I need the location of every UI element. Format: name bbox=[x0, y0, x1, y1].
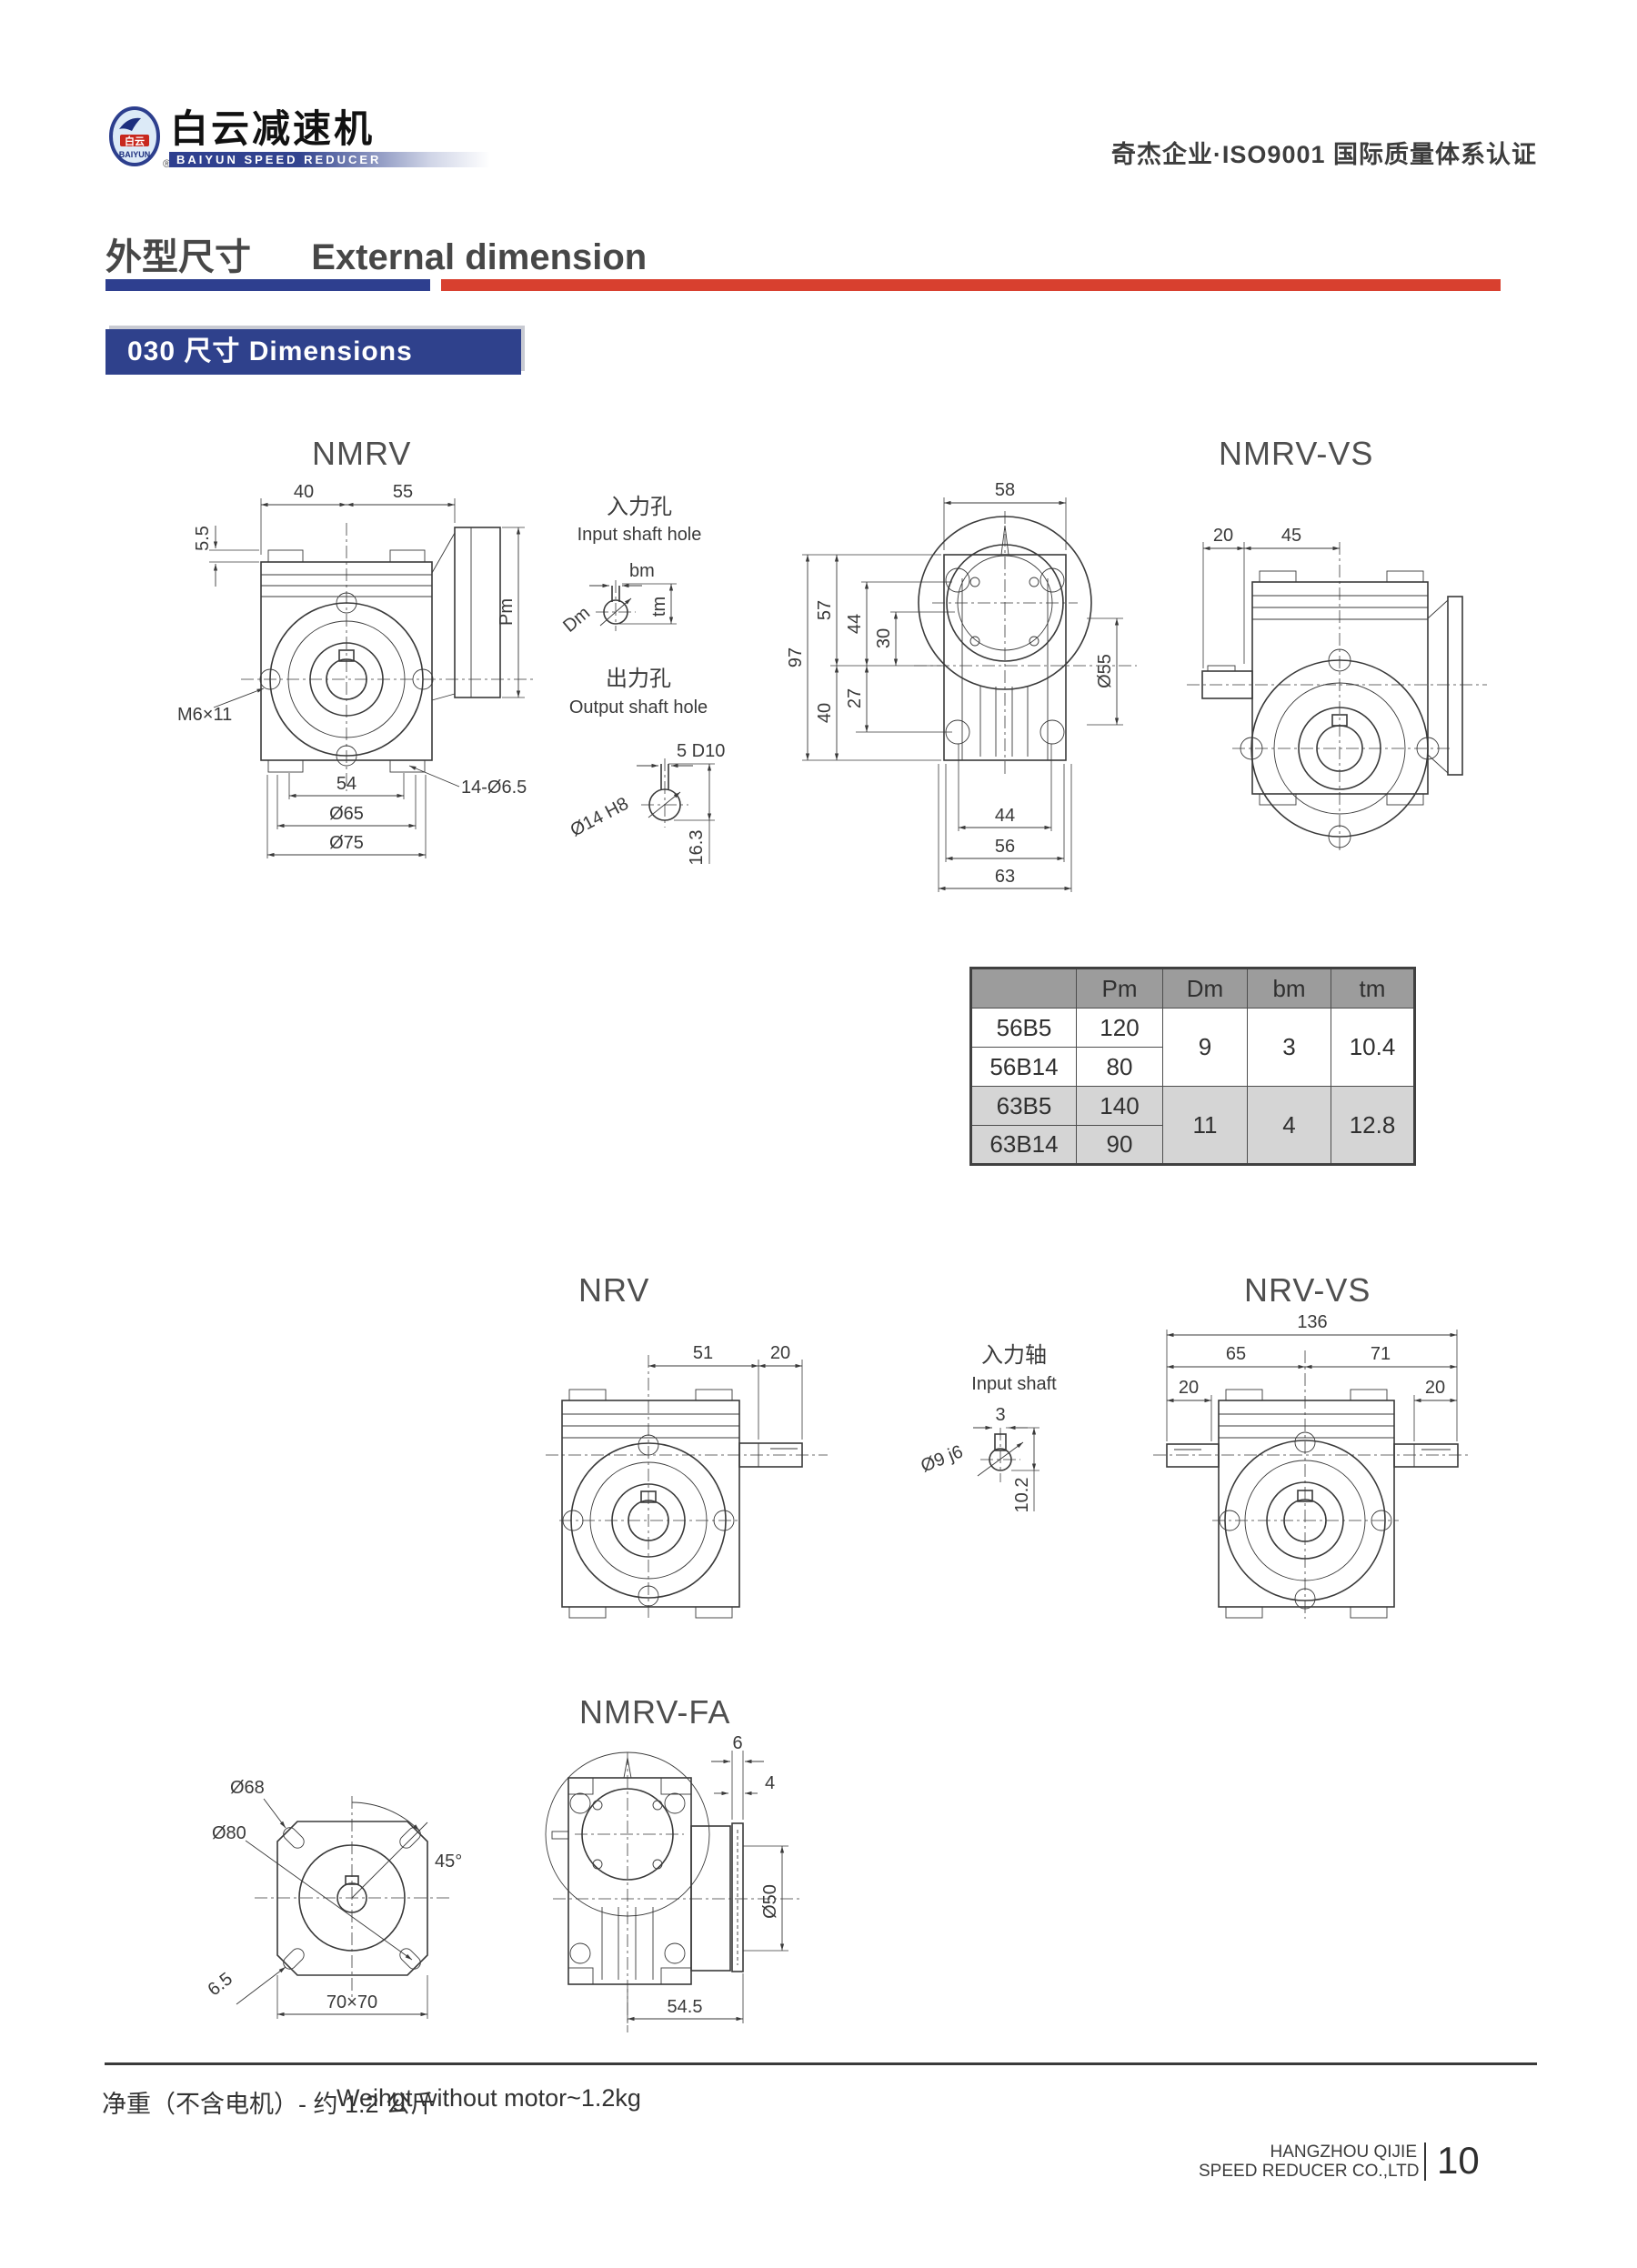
dim-o50: Ø50 bbox=[760, 1884, 780, 1919]
holes-leader bbox=[409, 766, 459, 787]
cell-bm-group: 4 bbox=[1248, 1087, 1331, 1165]
dimensions-banner: 030 尺寸 Dimensions bbox=[105, 329, 521, 375]
fa-flange-dims bbox=[236, 1799, 427, 2019]
table-row: 56B5 120 9 3 10.4 bbox=[971, 1009, 1415, 1048]
dim-b44: 44 bbox=[995, 806, 1015, 826]
cell-pm: 90 bbox=[1077, 1126, 1163, 1165]
dim-44l: 44 bbox=[845, 614, 865, 634]
cell-tm-group: 12.8 bbox=[1331, 1087, 1415, 1165]
catalog-page: 白云 BAIYUN ® 白云减速机 BAIYUN SPEED REDUCER 奇… bbox=[0, 0, 1637, 2268]
cell-model: 63B5 bbox=[971, 1087, 1077, 1126]
fa-centerlines bbox=[255, 1796, 450, 2001]
nmrv-motor-flange bbox=[432, 527, 500, 700]
weight-note-en: Weihgt without motor~1.2kg bbox=[336, 2084, 641, 2112]
nrv-vs-title: NRV-VS bbox=[1244, 1271, 1371, 1310]
dim-b56: 56 bbox=[995, 837, 1015, 857]
nmrv-fa-side-drawing: 6 4 Ø50 54.5 bbox=[509, 1732, 891, 2078]
dim-14-6-5: 14-Ø6.5 bbox=[461, 778, 527, 798]
dim-6-5: 6.5 bbox=[205, 1969, 236, 2000]
header-pm: Pm bbox=[1077, 968, 1163, 1009]
input-shaft-cn: 入力轴 bbox=[981, 1343, 1047, 1368]
dim-20right: 20 bbox=[1425, 1378, 1445, 1398]
dim-65vs: 65 bbox=[1226, 1344, 1246, 1364]
section-title: 外型尺寸 External dimension bbox=[105, 227, 647, 280]
dim-m6x11: M6×11 bbox=[177, 705, 232, 725]
dim-16-3: 16.3 bbox=[687, 830, 707, 866]
dim-20vs: 20 bbox=[1213, 526, 1233, 546]
nrvvs-housing bbox=[1219, 1390, 1394, 1618]
header-tm: tm bbox=[1331, 968, 1415, 1009]
dim-136: 136 bbox=[1297, 1312, 1327, 1332]
dim-54: 54 bbox=[336, 774, 357, 794]
nmrvvs-centerlines bbox=[1187, 542, 1487, 850]
title-underline-blue bbox=[105, 279, 430, 291]
page-number: 10 bbox=[1437, 2139, 1480, 2183]
output-hole-en: Output shaft hole bbox=[569, 697, 708, 718]
nrv-housing bbox=[562, 1390, 739, 1618]
company-line1: HANGZHOU QIJIE bbox=[1199, 2143, 1417, 2162]
header-bm: bm bbox=[1248, 968, 1331, 1009]
nrv-shaft bbox=[739, 1443, 802, 1467]
cell-pm: 80 bbox=[1077, 1048, 1163, 1087]
nmrv-drawing: 40 55 5.5 Pm 54 Ø65 Ø75 M6×11 14-Ø6.5 bbox=[114, 473, 541, 928]
input-shaft-en: Input shaft bbox=[971, 1374, 1057, 1394]
nrv-drawing: 51 20 bbox=[509, 1310, 900, 1655]
nmrv-vs-title: NMRV-VS bbox=[1219, 435, 1373, 473]
input-shaft-drawing: 入力轴 Input shaft 3 Ø9 j6 10.2 bbox=[900, 1300, 1155, 1591]
cell-model: 63B14 bbox=[971, 1126, 1077, 1165]
company-line2: SPEED REDUCER CO.,LTD bbox=[1199, 2162, 1417, 2181]
dim-20left: 20 bbox=[1179, 1378, 1199, 1398]
baiyun-logo-emblem: 白云 BAIYUN ® bbox=[110, 107, 174, 176]
nrv-vs-drawing: 136 65 71 20 20 bbox=[1149, 1310, 1558, 1655]
footer-divider bbox=[105, 2062, 1537, 2065]
dim-75: Ø75 bbox=[329, 833, 364, 853]
dim-4: 4 bbox=[765, 1773, 775, 1793]
dim-o68: Ø68 bbox=[230, 1778, 265, 1798]
section-title-cn: 外型尺寸 bbox=[105, 237, 251, 277]
dim-55: 55 bbox=[393, 482, 413, 502]
company-name: HANGZHOU QIJIE SPEED REDUCER CO.,LTD bbox=[1199, 2143, 1417, 2181]
dim-3: 3 bbox=[995, 1405, 1005, 1425]
dim-10-2: 10.2 bbox=[1012, 1478, 1032, 1513]
nmrv-vs-drawing: 20 45 bbox=[1178, 473, 1560, 928]
nmrv-fa-flange-drawing: Ø68 Ø80 45° 6.5 70×70 bbox=[118, 1773, 446, 2082]
dim-54-5: 54.5 bbox=[668, 1997, 703, 2017]
logo-subtitle-bar: BAIYUN SPEED REDUCER bbox=[169, 152, 497, 167]
cell-tm-group: 10.4 bbox=[1331, 1009, 1415, 1087]
dim-58: 58 bbox=[995, 480, 1015, 500]
section-title-en: External dimension bbox=[311, 237, 647, 277]
table-row: 63B5 140 11 4 12.8 bbox=[971, 1087, 1415, 1126]
dim-45deg: 45° bbox=[435, 1852, 462, 1872]
nmrv-centerlines bbox=[241, 523, 534, 791]
dim-70x70: 70×70 bbox=[326, 1992, 377, 2012]
dim-tm: tm bbox=[649, 597, 669, 617]
title-underline-red bbox=[441, 279, 1501, 291]
dim-dm: Dm bbox=[559, 603, 594, 637]
dim-45vs: 45 bbox=[1281, 526, 1301, 546]
cell-dm-group: 9 bbox=[1163, 1009, 1248, 1087]
cell-pm: 120 bbox=[1077, 1009, 1163, 1048]
nrv-dims bbox=[648, 1360, 802, 1440]
nrv-centerlines bbox=[546, 1355, 828, 1619]
logo-title: 白云减速机 bbox=[170, 109, 375, 149]
cell-bm-group: 3 bbox=[1248, 1009, 1331, 1087]
dim-40r: 40 bbox=[815, 703, 835, 723]
dimension-table: Pm Dm bm tm 56B5 120 9 3 10.4 56B14 80 6… bbox=[969, 967, 1416, 1166]
cell-pm: 140 bbox=[1077, 1087, 1163, 1126]
dim-o55: Ø55 bbox=[1095, 654, 1115, 688]
nmrv-title: NMRV bbox=[312, 435, 411, 473]
dim-o80: Ø80 bbox=[212, 1823, 246, 1843]
emblem-cn: 白云 bbox=[125, 135, 145, 147]
fa-side-output bbox=[691, 1823, 743, 1972]
cell-model: 56B5 bbox=[971, 1009, 1077, 1048]
dim-5-5: 5.5 bbox=[193, 526, 213, 551]
header-dm: Dm bbox=[1163, 968, 1248, 1009]
certification-text: 奇杰企业·ISO9001 国际质量体系认证 bbox=[1111, 135, 1537, 170]
dim-30: 30 bbox=[874, 628, 894, 648]
rear-view-drawing: 58 97 57 40 44 27 30 Ø55 44 56 63 bbox=[778, 473, 1169, 928]
input-hole-en: Input shaft hole bbox=[577, 525, 702, 545]
dim-51: 51 bbox=[693, 1343, 713, 1363]
dim-97: 97 bbox=[786, 647, 806, 667]
nmrvvs-bell bbox=[1428, 597, 1462, 775]
pagebar-separator bbox=[1424, 2143, 1426, 2181]
dim-14h8: Ø14 H8 bbox=[567, 794, 632, 841]
dim-71: 71 bbox=[1371, 1344, 1391, 1364]
input-hole-cn: 入力孔 bbox=[607, 495, 672, 519]
dim-20nrv: 20 bbox=[770, 1343, 790, 1363]
nmrvvs-shaft bbox=[1202, 666, 1252, 698]
dim-5d10: 5 D10 bbox=[677, 741, 725, 761]
nrvvs-shafts bbox=[1167, 1444, 1458, 1467]
header-blank bbox=[971, 968, 1077, 1009]
nmrvvs-dims bbox=[1203, 542, 1340, 668]
dim-b63: 63 bbox=[995, 867, 1015, 887]
output-hole-cn: 出力孔 bbox=[606, 667, 671, 691]
dim-6: 6 bbox=[732, 1733, 742, 1753]
nrv-title: NRV bbox=[578, 1271, 649, 1310]
nmrv-dim-55left bbox=[209, 526, 259, 587]
nmrv-dim-top bbox=[261, 498, 455, 555]
nrvvs-centerlines bbox=[1153, 1350, 1471, 1619]
dim-bm: bm bbox=[629, 561, 655, 581]
nmrv-fa-title: NMRV-FA bbox=[579, 1693, 730, 1731]
dim-o9j6: Ø9 j6 bbox=[918, 1441, 966, 1476]
cell-dm-group: 11 bbox=[1163, 1087, 1248, 1165]
nrvvs-dims bbox=[1167, 1330, 1457, 1441]
dim-27: 27 bbox=[845, 688, 865, 708]
dim-65: Ø65 bbox=[329, 804, 364, 824]
dim-40: 40 bbox=[294, 482, 314, 502]
table-header-row: Pm Dm bm tm bbox=[971, 968, 1415, 1009]
dim-pm: Pm bbox=[497, 598, 517, 626]
dim-57: 57 bbox=[815, 600, 835, 620]
emblem-en: BAIYUN bbox=[119, 150, 151, 159]
cell-model: 56B14 bbox=[971, 1048, 1077, 1087]
